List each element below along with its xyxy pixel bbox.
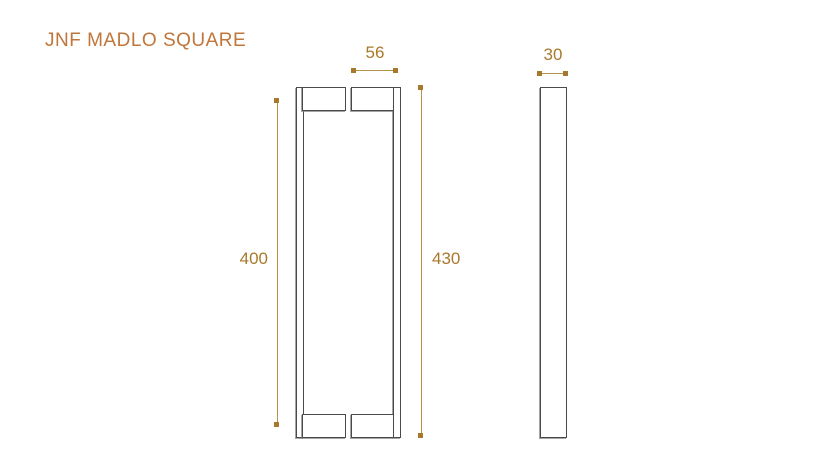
dimension-30-value: 30	[540, 45, 566, 65]
dimension-400-line	[277, 100, 278, 425]
side-view-bar	[540, 87, 567, 438]
dimension-56-end-marker	[351, 68, 356, 73]
dimension-56-line	[354, 70, 396, 71]
front-view-top-right-mount	[351, 87, 394, 111]
front-view-bottom-right-mount	[351, 414, 394, 438]
dimension-56-value: 56	[354, 43, 396, 63]
dimension-30-end-marker	[563, 71, 568, 76]
front-view-top-left-mount	[302, 87, 346, 111]
front-view-right-bar	[393, 87, 401, 438]
drawing-title: JNF MADLO SQUARE	[45, 30, 246, 52]
dimension-430-end-marker	[418, 433, 423, 438]
dimension-400-end-marker	[274, 422, 279, 427]
front-view-left-bar	[296, 87, 304, 438]
dimension-400-value: 400	[226, 249, 268, 269]
dimension-30-end-marker	[537, 71, 542, 76]
dimension-430-value: 430	[432, 249, 482, 269]
dimension-430-line	[421, 88, 422, 436]
front-view-bottom-left-mount	[302, 414, 346, 438]
dimension-400-end-marker	[274, 98, 279, 103]
drawing-canvas: JNF MADLO SQUARE 56 400 430 30	[0, 0, 819, 460]
dimension-56-end-marker	[393, 68, 398, 73]
dimension-430-end-marker	[418, 85, 423, 90]
